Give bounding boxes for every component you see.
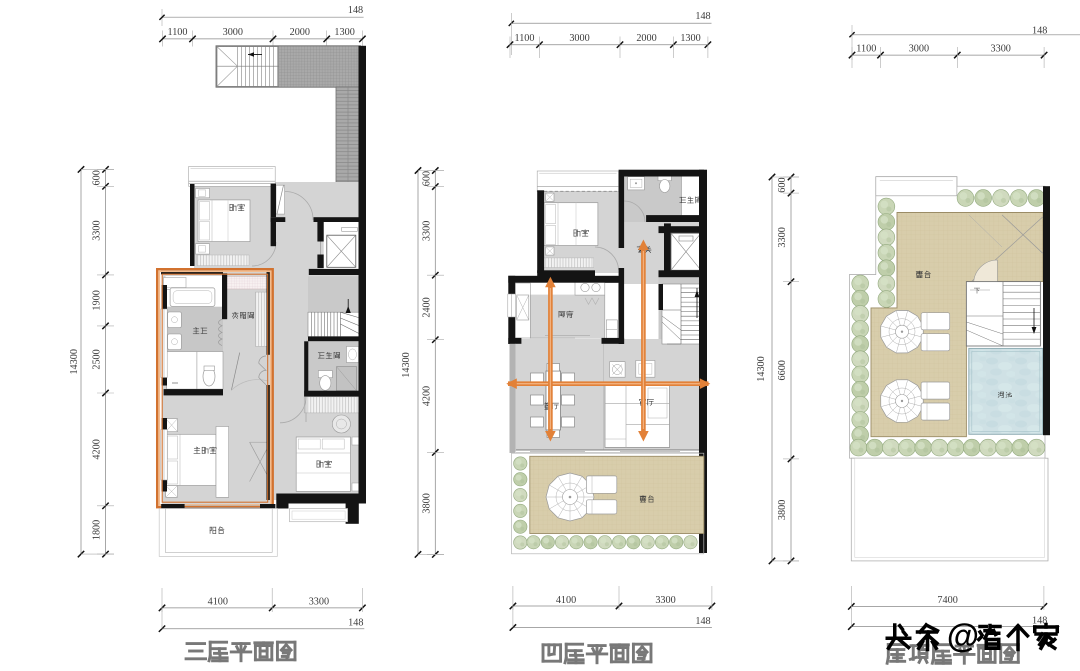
svg-text:148: 148 xyxy=(348,617,363,628)
svg-text:148: 148 xyxy=(695,616,710,627)
svg-text:1300: 1300 xyxy=(680,33,700,44)
svg-text:6600: 6600 xyxy=(777,360,788,380)
svg-text:1900: 1900 xyxy=(92,290,103,310)
svg-text:3000: 3000 xyxy=(909,44,929,55)
svg-text:3800: 3800 xyxy=(777,500,788,520)
svg-text:3300: 3300 xyxy=(92,220,103,240)
svg-text:148: 148 xyxy=(348,5,363,16)
svg-text:3300: 3300 xyxy=(777,227,788,247)
svg-text:1800: 1800 xyxy=(92,520,103,540)
svg-text:1300: 1300 xyxy=(334,27,354,38)
svg-text:1100: 1100 xyxy=(515,33,535,44)
svg-text:14300: 14300 xyxy=(401,352,412,377)
svg-text:14300: 14300 xyxy=(69,349,80,374)
svg-text:2000: 2000 xyxy=(636,33,656,44)
svg-text:3000: 3000 xyxy=(569,33,589,44)
svg-text:3000: 3000 xyxy=(223,27,243,38)
svg-text:3300: 3300 xyxy=(655,595,675,606)
svg-text:600: 600 xyxy=(777,177,788,192)
svg-text:4100: 4100 xyxy=(556,595,576,606)
svg-text:4100: 4100 xyxy=(208,597,228,608)
svg-text:2000: 2000 xyxy=(290,27,310,38)
svg-text:3300: 3300 xyxy=(421,221,432,241)
svg-text:600: 600 xyxy=(421,171,432,186)
svg-text:@: @ xyxy=(947,617,979,654)
svg-text:3800: 3800 xyxy=(421,493,432,513)
svg-text:148: 148 xyxy=(695,11,710,22)
svg-text:600: 600 xyxy=(92,170,103,185)
svg-text:4200: 4200 xyxy=(92,439,103,459)
svg-text:3300: 3300 xyxy=(309,597,329,608)
svg-text:1100: 1100 xyxy=(168,27,188,38)
svg-text:4200: 4200 xyxy=(421,386,432,406)
svg-text:148: 148 xyxy=(1032,26,1047,37)
svg-text:1100: 1100 xyxy=(856,44,876,55)
svg-text:14300: 14300 xyxy=(756,356,767,381)
svg-text:3300: 3300 xyxy=(991,44,1011,55)
svg-text:7400: 7400 xyxy=(937,595,957,606)
svg-text:2500: 2500 xyxy=(92,349,103,369)
svg-text:2400: 2400 xyxy=(421,297,432,317)
